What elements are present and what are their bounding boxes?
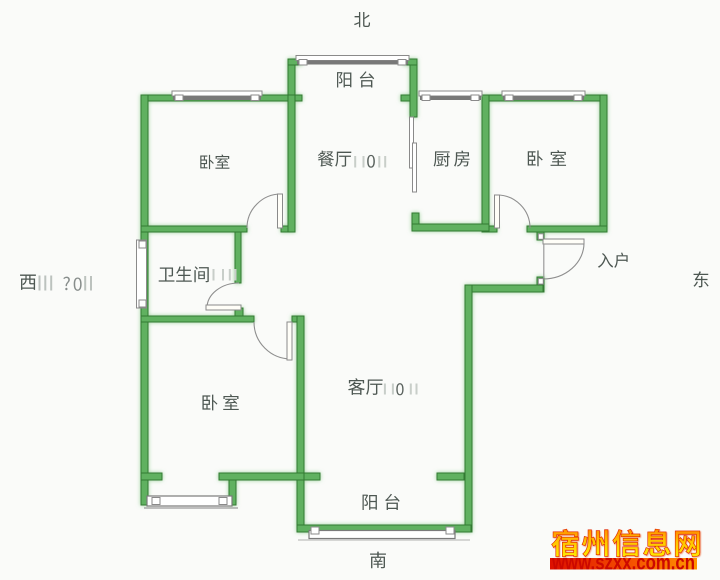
svg-text:www.szxx.com.cn: www.szxx.com.cn xyxy=(551,552,695,575)
